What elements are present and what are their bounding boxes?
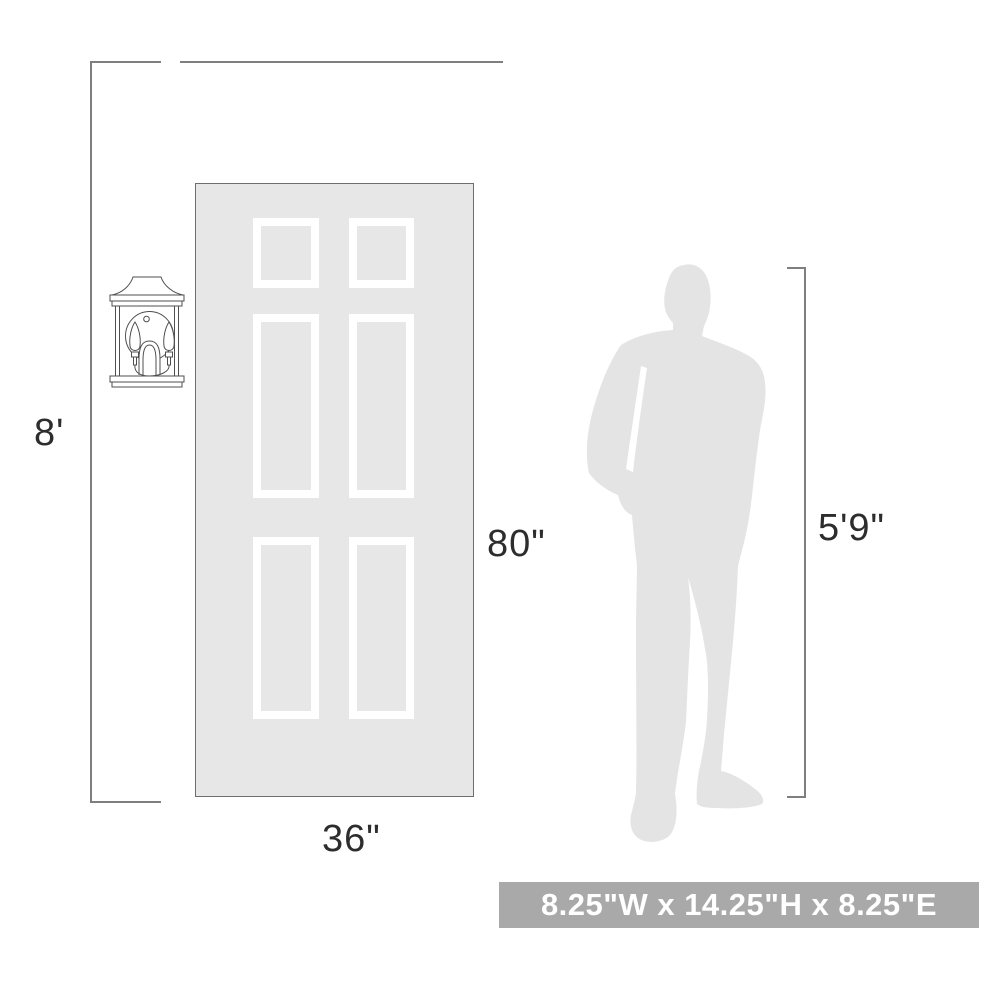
wall-height-dimension-line	[90, 61, 92, 803]
door-panel	[253, 314, 319, 498]
door-panel	[349, 537, 414, 719]
door-panel	[253, 537, 319, 719]
person-height-bottom-tick	[787, 796, 806, 798]
door-panel	[253, 218, 319, 288]
product-dimension-diagram: 8' 80" 36"	[0, 0, 1000, 1000]
person-height-label: 5'9"	[818, 509, 885, 547]
person-height-dimension-line	[804, 267, 806, 798]
ceiling-line	[180, 61, 503, 63]
door-height-label: 80"	[487, 525, 546, 563]
door-panel	[349, 218, 414, 288]
wall-height-label: 8'	[34, 414, 64, 452]
wall-height-bottom-tick	[90, 801, 161, 803]
wall-height-top-tick	[90, 61, 161, 63]
person-height-top-tick	[787, 267, 806, 269]
person-silhouette-icon	[585, 262, 775, 844]
dimensions-banner-text: 8.25"W x 14.25"H x 8.25"E	[541, 887, 937, 923]
dimensions-banner: 8.25"W x 14.25"H x 8.25"E	[499, 882, 979, 928]
wall-sconce-icon	[107, 273, 187, 390]
door	[195, 183, 474, 797]
door-panel	[349, 314, 414, 498]
door-width-label: 36"	[322, 820, 381, 858]
